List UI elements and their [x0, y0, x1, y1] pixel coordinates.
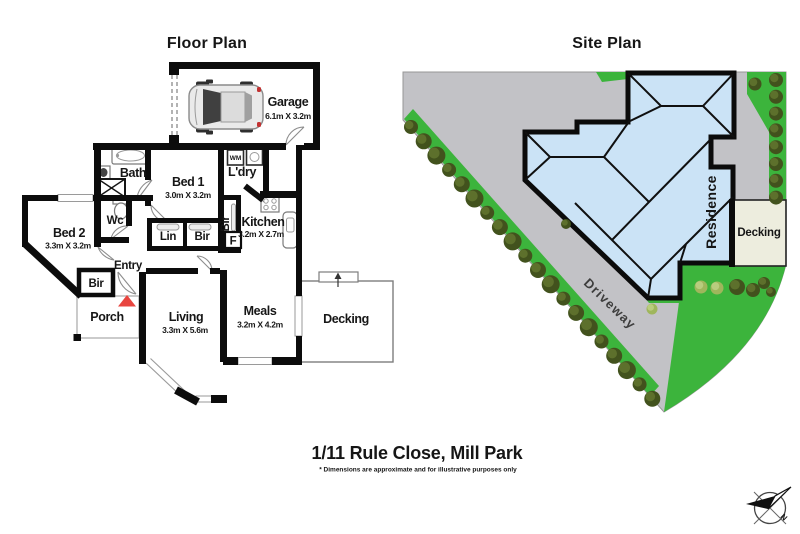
- polygon-decor: [203, 89, 221, 125]
- room-label-bed2: Bed 2: [53, 226, 85, 240]
- rect-decor: [295, 296, 302, 336]
- room-dims-living: 3.3m X 5.6m: [162, 325, 209, 335]
- site-label-residence: Residence: [703, 175, 719, 249]
- circle-decor: [770, 175, 778, 183]
- room-label-meals: Meals: [244, 304, 277, 318]
- line-decor: [151, 359, 186, 392]
- circle-decor: [767, 288, 773, 294]
- circle-decor: [770, 124, 778, 132]
- site-plan-title: Site Plan: [572, 35, 641, 52]
- site-label-decking: Decking: [737, 227, 781, 239]
- tree-icon: [442, 163, 456, 177]
- rect-decor: [126, 196, 132, 226]
- rect-decor: [93, 143, 286, 150]
- rect-decor: [272, 357, 302, 365]
- circle-decor: [770, 74, 778, 82]
- path-decor: [176, 390, 198, 402]
- rect-decor: [257, 122, 261, 127]
- rect-decor: [58, 195, 93, 202]
- tree-icon: [711, 282, 724, 295]
- rect-decor: [220, 270, 227, 362]
- circle-decor: [730, 280, 740, 290]
- room-label-bath: Bath: [120, 166, 146, 180]
- room-label-entry: Entry: [114, 260, 143, 272]
- room-label-garage: Garage: [268, 95, 309, 109]
- rect-decor: [22, 195, 28, 247]
- tree-icon: [542, 275, 560, 293]
- circle-decor: [607, 349, 617, 359]
- tree-icon: [695, 281, 708, 294]
- tree-icon: [454, 176, 470, 192]
- tree-icon: [618, 361, 636, 379]
- circle-decor: [619, 362, 630, 373]
- rect-decor: [139, 272, 146, 364]
- circle-decor: [596, 335, 604, 343]
- circle-decor: [562, 220, 568, 226]
- rect-decor: [218, 195, 241, 200]
- tree-icon: [530, 262, 546, 278]
- rect-decor: [206, 131, 213, 135]
- tree-icon: [769, 123, 783, 137]
- room-label-bir-hall: Bir: [194, 231, 210, 243]
- rect-decor: [223, 357, 238, 365]
- kitchen-bench: [283, 212, 297, 248]
- tree-icon: [466, 190, 484, 208]
- circle-decor: [543, 276, 554, 287]
- floor-plan-title: Floor Plan: [167, 35, 247, 52]
- room-dims-meals: 3.2m X 4.2m: [237, 320, 284, 330]
- circle-decor: [557, 292, 565, 300]
- rect-decor: [304, 143, 320, 150]
- tree-icon: [416, 133, 432, 149]
- tree-icon: [556, 292, 570, 306]
- path-decor: [25, 244, 81, 296]
- rect-decor: [729, 199, 735, 267]
- circle-decor: [581, 319, 592, 330]
- rect-decor: [150, 246, 220, 251]
- circle-decor: [519, 250, 527, 258]
- shelf-icon: [232, 204, 236, 231]
- circle-decor: [759, 278, 766, 285]
- site-plan: Site Plan Residence Decking Driveway: [403, 35, 786, 412]
- rect-decor: [218, 150, 224, 253]
- rect-decor: [145, 200, 151, 206]
- tree-icon: [568, 305, 584, 321]
- rect-decor: [257, 87, 261, 92]
- tree-icon: [769, 73, 783, 87]
- rect-decor: [313, 62, 320, 150]
- disclaimer-text: * Dimensions are approximate and for ill…: [319, 467, 517, 474]
- tree-icon: [766, 287, 776, 297]
- room-label-wc: Wc: [107, 215, 125, 227]
- circle-decor: [711, 282, 719, 290]
- room-label-bed1: Bed 1: [172, 175, 204, 189]
- room-dims-kitchen: 3.2m X 2.7m: [238, 229, 285, 239]
- rect-decor: [146, 268, 198, 274]
- rect-decor: [93, 195, 153, 201]
- rect-decor: [247, 149, 263, 165]
- path-decor: [118, 272, 136, 294]
- shelf-icon: [189, 224, 211, 230]
- room-label-living: Living: [169, 310, 203, 324]
- plan-canvas: Floor Plan: [0, 0, 800, 534]
- room-label-linen: Lin: [160, 231, 177, 243]
- circle-decor: [116, 154, 119, 157]
- room-dims-garage: 6.1m X 3.2m: [265, 111, 312, 121]
- rect-decor: [183, 218, 187, 250]
- floor-plan: Floor Plan: [22, 35, 393, 403]
- tree-icon: [647, 304, 658, 315]
- tree-icon: [561, 219, 571, 229]
- room-label-porch: Porch: [90, 310, 123, 324]
- circle-decor: [770, 107, 778, 115]
- room-dims-bed2: 3.3m X 3.2m: [45, 241, 92, 251]
- tree-icon: [758, 277, 770, 289]
- tree-icon: [729, 279, 745, 295]
- tree-icon: [769, 140, 783, 154]
- circle-decor: [443, 164, 451, 172]
- circle-decor: [417, 134, 427, 144]
- circle-decor: [455, 177, 465, 187]
- rect-decor: [283, 212, 297, 248]
- tree-icon: [749, 78, 762, 91]
- tree-icon: [633, 377, 647, 391]
- porch-post: [74, 334, 82, 341]
- tree-icon: [595, 335, 609, 349]
- compass-rose-icon: N: [746, 487, 791, 524]
- circle-decor: [405, 121, 413, 129]
- tree-icon: [404, 120, 418, 134]
- plan-page: Floor Plan: [0, 0, 800, 534]
- rect-decor: [296, 147, 302, 296]
- path-decor: [286, 127, 304, 145]
- rect-decor: [260, 191, 302, 198]
- tree-icon: [580, 318, 598, 336]
- rect-decor: [173, 62, 320, 69]
- address-title: 1/11 Rule Close, Mill Park: [312, 443, 524, 463]
- circle-decor: [429, 148, 440, 159]
- room-label-bir-bed2: Bir: [88, 278, 104, 290]
- circle-decor: [493, 220, 503, 230]
- tree-icon: [427, 147, 445, 165]
- compass-north-label: N: [779, 512, 790, 523]
- circle-decor: [770, 158, 778, 166]
- room-label-decking: Decking: [323, 312, 369, 326]
- garage-door-icon: [172, 75, 177, 135]
- rect-decor: [96, 237, 129, 243]
- shelf-icon: [157, 224, 179, 230]
- room-dims-bed1: 3.0m X 3.2m: [165, 190, 212, 200]
- tree-icon: [769, 174, 783, 188]
- circle-decor: [695, 281, 703, 289]
- circle-decor: [770, 191, 778, 199]
- shower-icon: [98, 179, 125, 197]
- label-wm: WM: [230, 155, 242, 162]
- circle-decor: [481, 207, 489, 215]
- circle-decor: [531, 263, 541, 273]
- rect-decor: [169, 62, 179, 75]
- circle-decor: [634, 378, 642, 386]
- path-decor: [98, 247, 114, 260]
- tree-icon: [644, 391, 660, 407]
- circle-decor: [646, 392, 656, 402]
- tree-icon: [769, 90, 783, 104]
- rect-decor: [263, 150, 269, 191]
- tree-icon: [606, 348, 622, 364]
- laundry-trough-icon: [247, 149, 263, 165]
- tree-icon: [480, 206, 494, 220]
- tree-icon: [746, 283, 760, 297]
- car-icon: [189, 80, 263, 135]
- rect-decor: [238, 358, 272, 365]
- tree-icon: [769, 191, 783, 205]
- circle-decor: [770, 91, 778, 99]
- circle-decor: [749, 78, 757, 86]
- tree-icon: [769, 157, 783, 171]
- room-label-kitchen: Kitchen: [241, 215, 284, 229]
- rect-decor: [210, 268, 220, 274]
- rect-decor: [211, 395, 227, 403]
- room-label-bir-bed1: Bir: [220, 216, 232, 232]
- circle-decor: [770, 141, 778, 149]
- rect-decor: [221, 92, 245, 122]
- room-label-laundry: L'dry: [228, 165, 257, 179]
- tree-icon: [504, 232, 522, 250]
- rect-decor: [206, 80, 213, 84]
- circle-decor: [505, 233, 516, 244]
- circle-decor: [569, 306, 579, 316]
- rect-decor: [23, 195, 58, 201]
- footer: 1/11 Rule Close, Mill Park * Dimensions …: [312, 443, 524, 474]
- circle-decor: [467, 191, 478, 202]
- tree-icon: [492, 219, 508, 235]
- circle-decor: [747, 284, 755, 292]
- tree-icon: [769, 107, 783, 121]
- path-decor: [197, 256, 212, 271]
- tree-icon: [518, 249, 532, 263]
- polygon-decor: [245, 92, 252, 122]
- circle-decor: [647, 304, 654, 311]
- label-fridge: F: [230, 236, 237, 248]
